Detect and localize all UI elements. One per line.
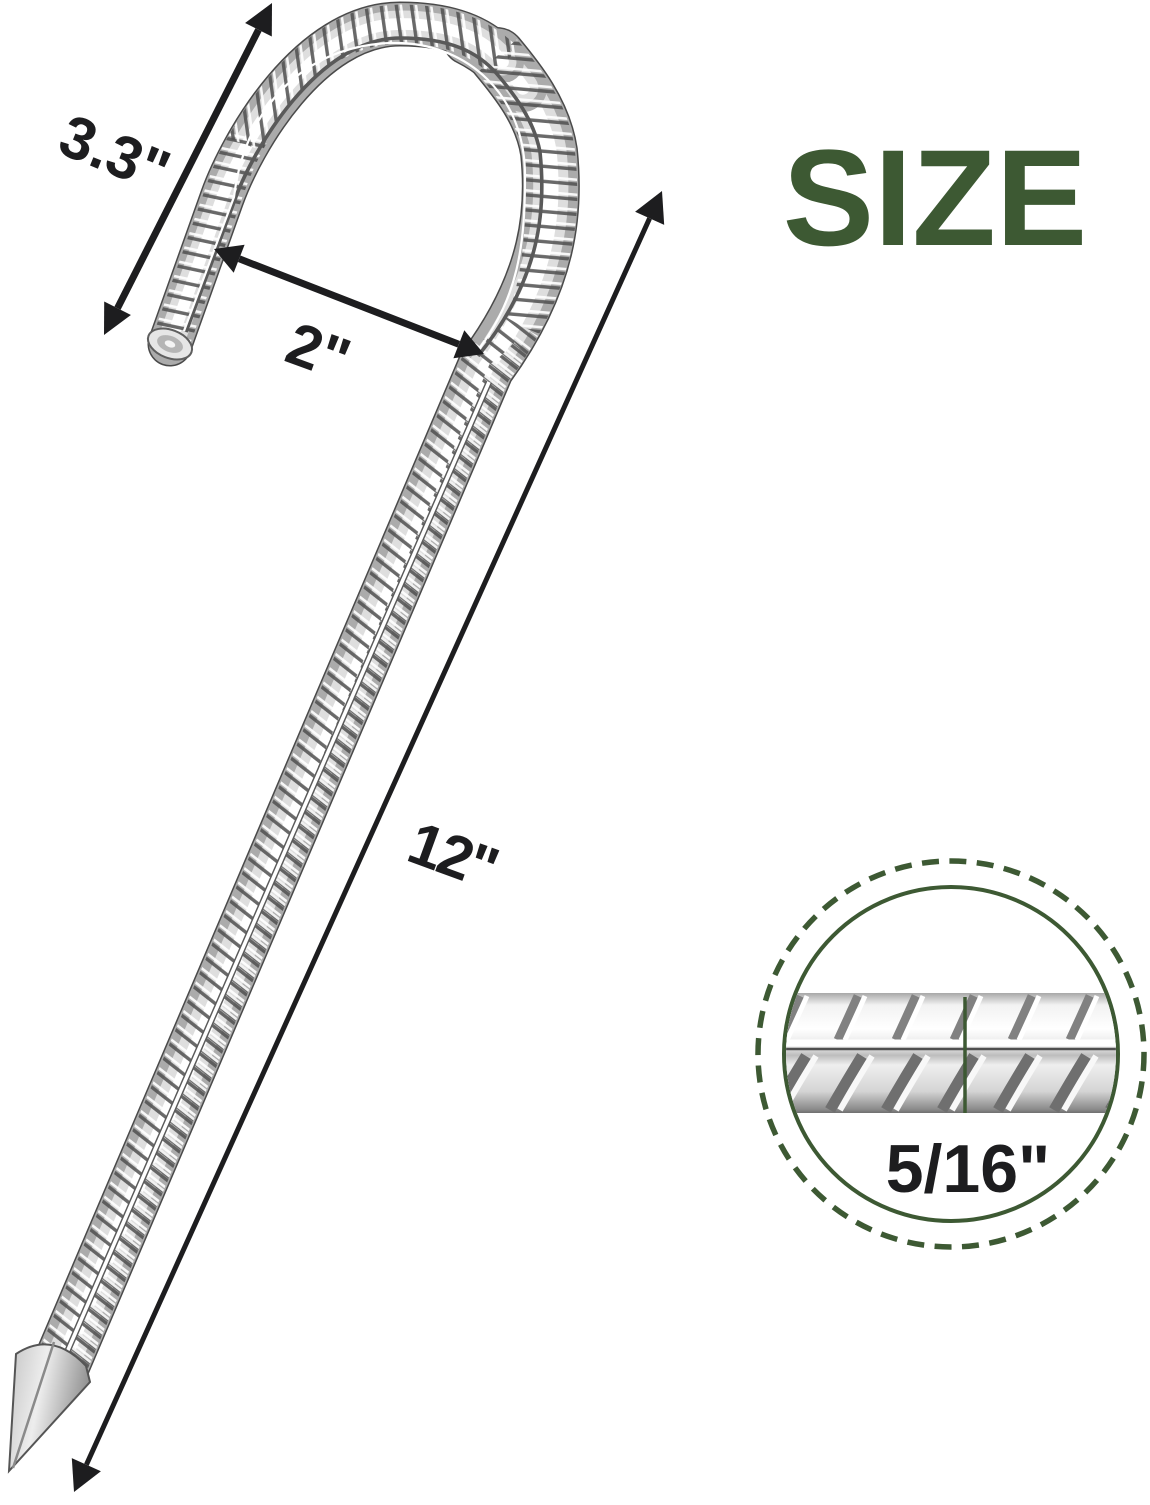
svg-text:5/16": 5/16" — [886, 1131, 1051, 1207]
svg-text:SIZE: SIZE — [783, 122, 1088, 275]
